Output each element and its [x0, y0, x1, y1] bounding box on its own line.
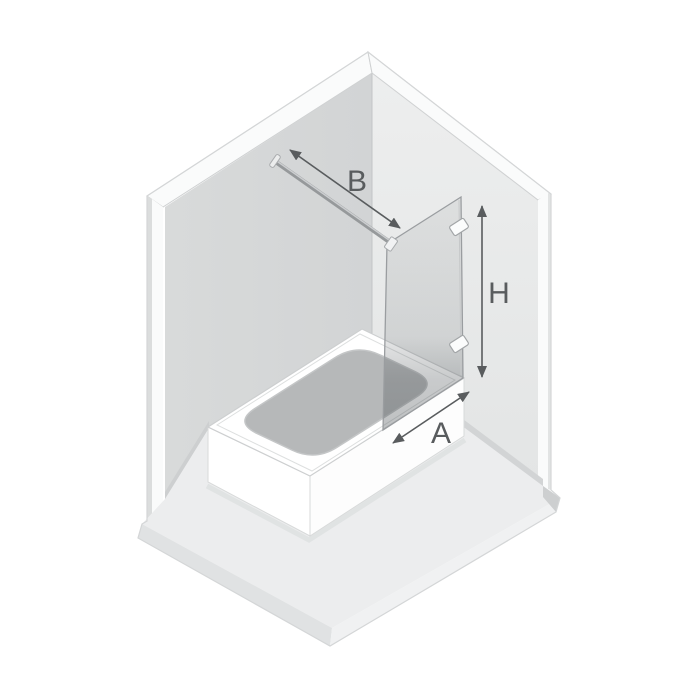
right-wall-edge-strip	[538, 193, 548, 489]
diagram-canvas: B H A	[0, 0, 700, 700]
dimension-b-label: B	[347, 165, 367, 198]
left-wall-edge-strip	[152, 199, 163, 517]
dimension-a-label: A	[431, 417, 451, 450]
dimension-h-label: H	[488, 277, 510, 310]
product-dimension-diagram: B H A	[0, 0, 700, 700]
left-wall-outer-face	[147, 196, 152, 521]
